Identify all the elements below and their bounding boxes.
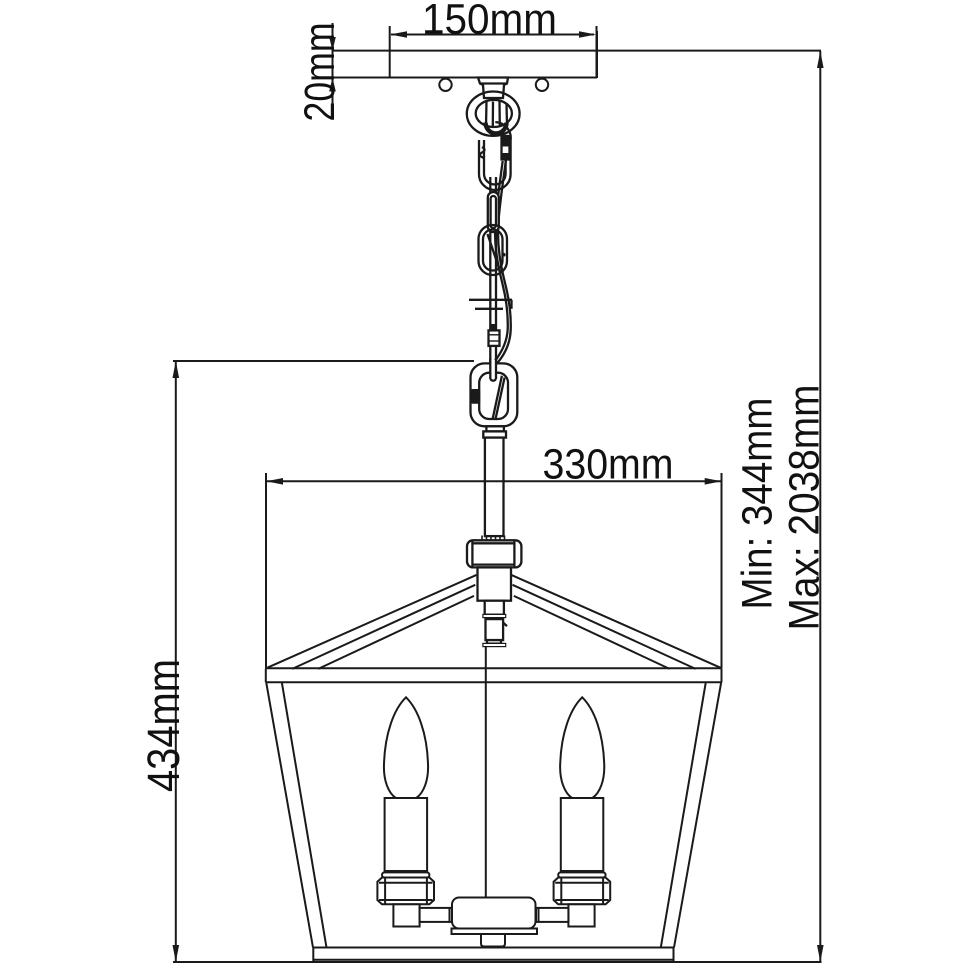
svg-text:330mm: 330mm: [543, 441, 674, 489]
svg-text:Max: 2038mm: Max: 2038mm: [781, 385, 829, 631]
svg-text:150mm: 150mm: [422, 0, 557, 44]
svg-text:Min: 344mm: Min: 344mm: [734, 398, 782, 610]
svg-text:20mm: 20mm: [296, 23, 344, 122]
svg-text:434mm: 434mm: [138, 659, 189, 792]
